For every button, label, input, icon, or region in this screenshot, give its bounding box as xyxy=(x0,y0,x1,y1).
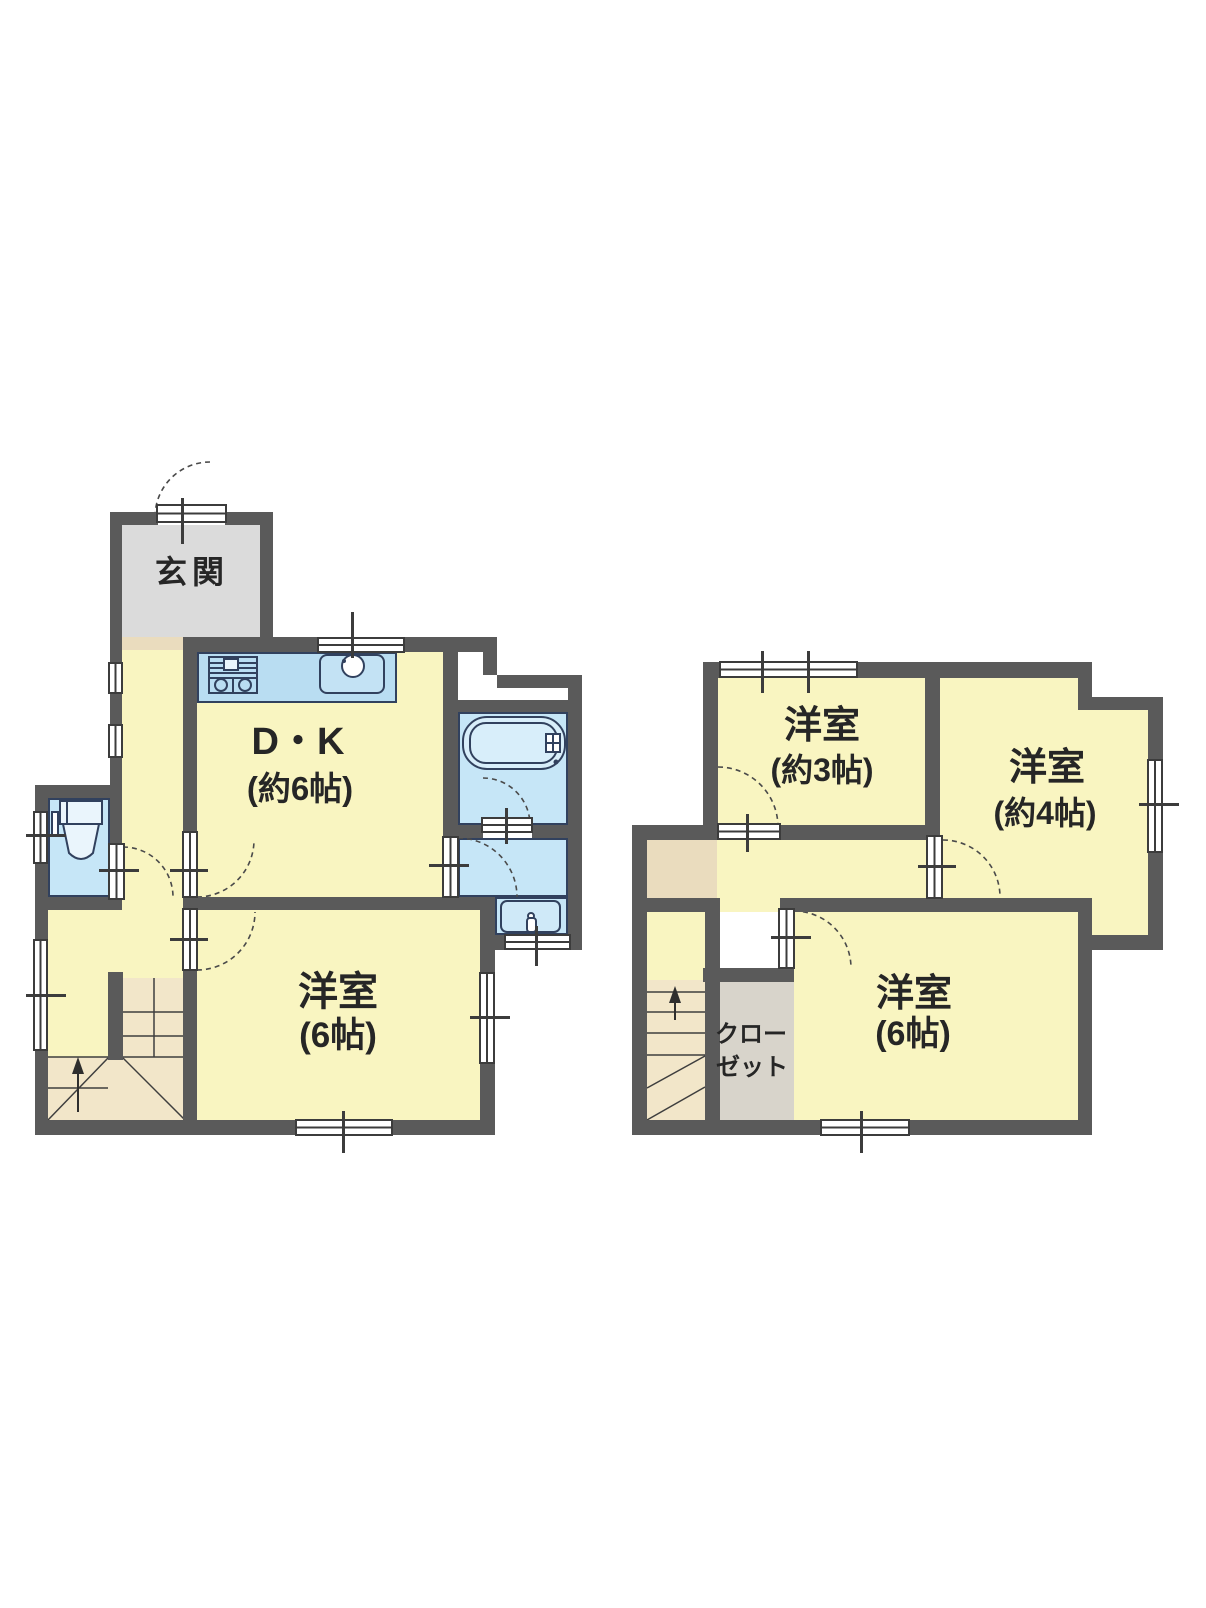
wall xyxy=(110,798,122,845)
wall xyxy=(1092,935,1163,950)
landing-2f-fill xyxy=(647,840,717,898)
window xyxy=(108,662,123,694)
wall-tick xyxy=(26,994,66,997)
room-label-entrance: 玄関 xyxy=(122,556,262,588)
room-label-western-3jo: 洋室 xyxy=(722,707,922,745)
wall-tick xyxy=(761,651,764,693)
wall xyxy=(110,512,122,637)
wall xyxy=(35,785,48,812)
stairs-2f-fill xyxy=(647,980,705,1120)
wall xyxy=(35,1050,48,1135)
wall xyxy=(483,652,497,675)
wall xyxy=(632,825,647,1135)
wall-tick xyxy=(505,808,508,844)
wall-tick xyxy=(26,834,66,837)
wall xyxy=(532,825,568,838)
entrance-step-fill xyxy=(122,637,183,650)
window xyxy=(820,1119,910,1136)
wall-tick xyxy=(807,651,810,693)
room-size-western-1f: (6帖) xyxy=(218,1018,458,1053)
wall xyxy=(108,972,123,1060)
window xyxy=(719,661,858,678)
hall-2f-fill xyxy=(720,898,780,912)
wall xyxy=(1078,912,1092,1135)
room-size-western-3jo: (約3帖) xyxy=(702,754,942,786)
wall xyxy=(458,825,483,838)
closet-label-line1: クロー xyxy=(701,1023,801,1047)
wall-tick xyxy=(535,926,538,966)
wall xyxy=(910,1120,1092,1135)
wall xyxy=(780,825,925,840)
wall xyxy=(1078,678,1092,710)
room-size-dk: (約6帖) xyxy=(180,772,420,805)
toilet-room-fill xyxy=(48,798,110,897)
wall-tick xyxy=(470,1016,510,1019)
window xyxy=(33,811,48,864)
washroom-fill xyxy=(458,838,568,897)
western-room-1f-fill xyxy=(197,910,480,1120)
stairs-1f-fill xyxy=(48,1057,185,1122)
room-label-western-1f: 洋室 xyxy=(238,972,438,1012)
wall xyxy=(405,637,497,652)
wall xyxy=(632,825,718,840)
wall xyxy=(183,897,495,910)
wall xyxy=(35,897,110,910)
wall-tick xyxy=(170,938,208,941)
door-leaf xyxy=(442,836,459,898)
washroom-fill xyxy=(495,897,568,935)
wall xyxy=(183,970,197,1120)
hall-2f-fill xyxy=(647,912,705,980)
wall xyxy=(458,700,568,712)
wall xyxy=(1092,697,1163,710)
door-leaf xyxy=(182,831,198,898)
wall xyxy=(393,1120,495,1135)
room-label-dk: D・K xyxy=(198,723,398,761)
wall-tick xyxy=(746,814,749,852)
hallway-fill xyxy=(48,978,108,1057)
wall xyxy=(183,637,317,652)
wall-tick xyxy=(181,498,184,544)
hallway-fill xyxy=(48,910,183,978)
wall xyxy=(570,935,582,950)
wall-tick xyxy=(771,936,811,939)
wall xyxy=(703,662,718,840)
kitchen-counter xyxy=(197,652,397,703)
wall-tick xyxy=(351,612,354,658)
wall xyxy=(568,675,582,950)
wall-tick xyxy=(99,869,139,872)
wall xyxy=(858,662,1092,678)
wall xyxy=(48,785,122,798)
room-label-western-4jo: 洋室 xyxy=(947,749,1147,787)
wall xyxy=(35,1120,295,1135)
closet-label-line2: ゼット xyxy=(702,1056,802,1080)
wall xyxy=(110,693,122,725)
stairs-1f-fill xyxy=(123,978,185,1057)
door-leaf xyxy=(717,823,781,840)
window xyxy=(108,724,123,758)
closet-fill xyxy=(720,982,794,1120)
wall xyxy=(443,652,458,838)
wall-tick xyxy=(860,1111,863,1153)
floor-plan-image: 玄関 D・K (約6帖) 洋室 (6帖) xyxy=(0,0,1206,1608)
wall-tick xyxy=(342,1111,345,1153)
room-label-western-6jo-2f: 洋室 xyxy=(814,975,1014,1013)
room-size-western-4jo: (約4帖) xyxy=(925,797,1165,829)
wall xyxy=(183,650,197,833)
wall-tick xyxy=(918,865,956,868)
room-size-western-6jo-2f: (6帖) xyxy=(793,1017,1033,1051)
bathroom-fill xyxy=(458,712,568,825)
wall xyxy=(110,637,122,663)
wall-tick xyxy=(170,869,208,872)
wall xyxy=(1148,710,1163,760)
wall xyxy=(705,910,720,1120)
door-leaf xyxy=(156,504,227,523)
wall xyxy=(632,1120,820,1135)
window xyxy=(317,637,405,653)
wall xyxy=(780,898,1092,912)
wall-tick xyxy=(429,864,469,867)
